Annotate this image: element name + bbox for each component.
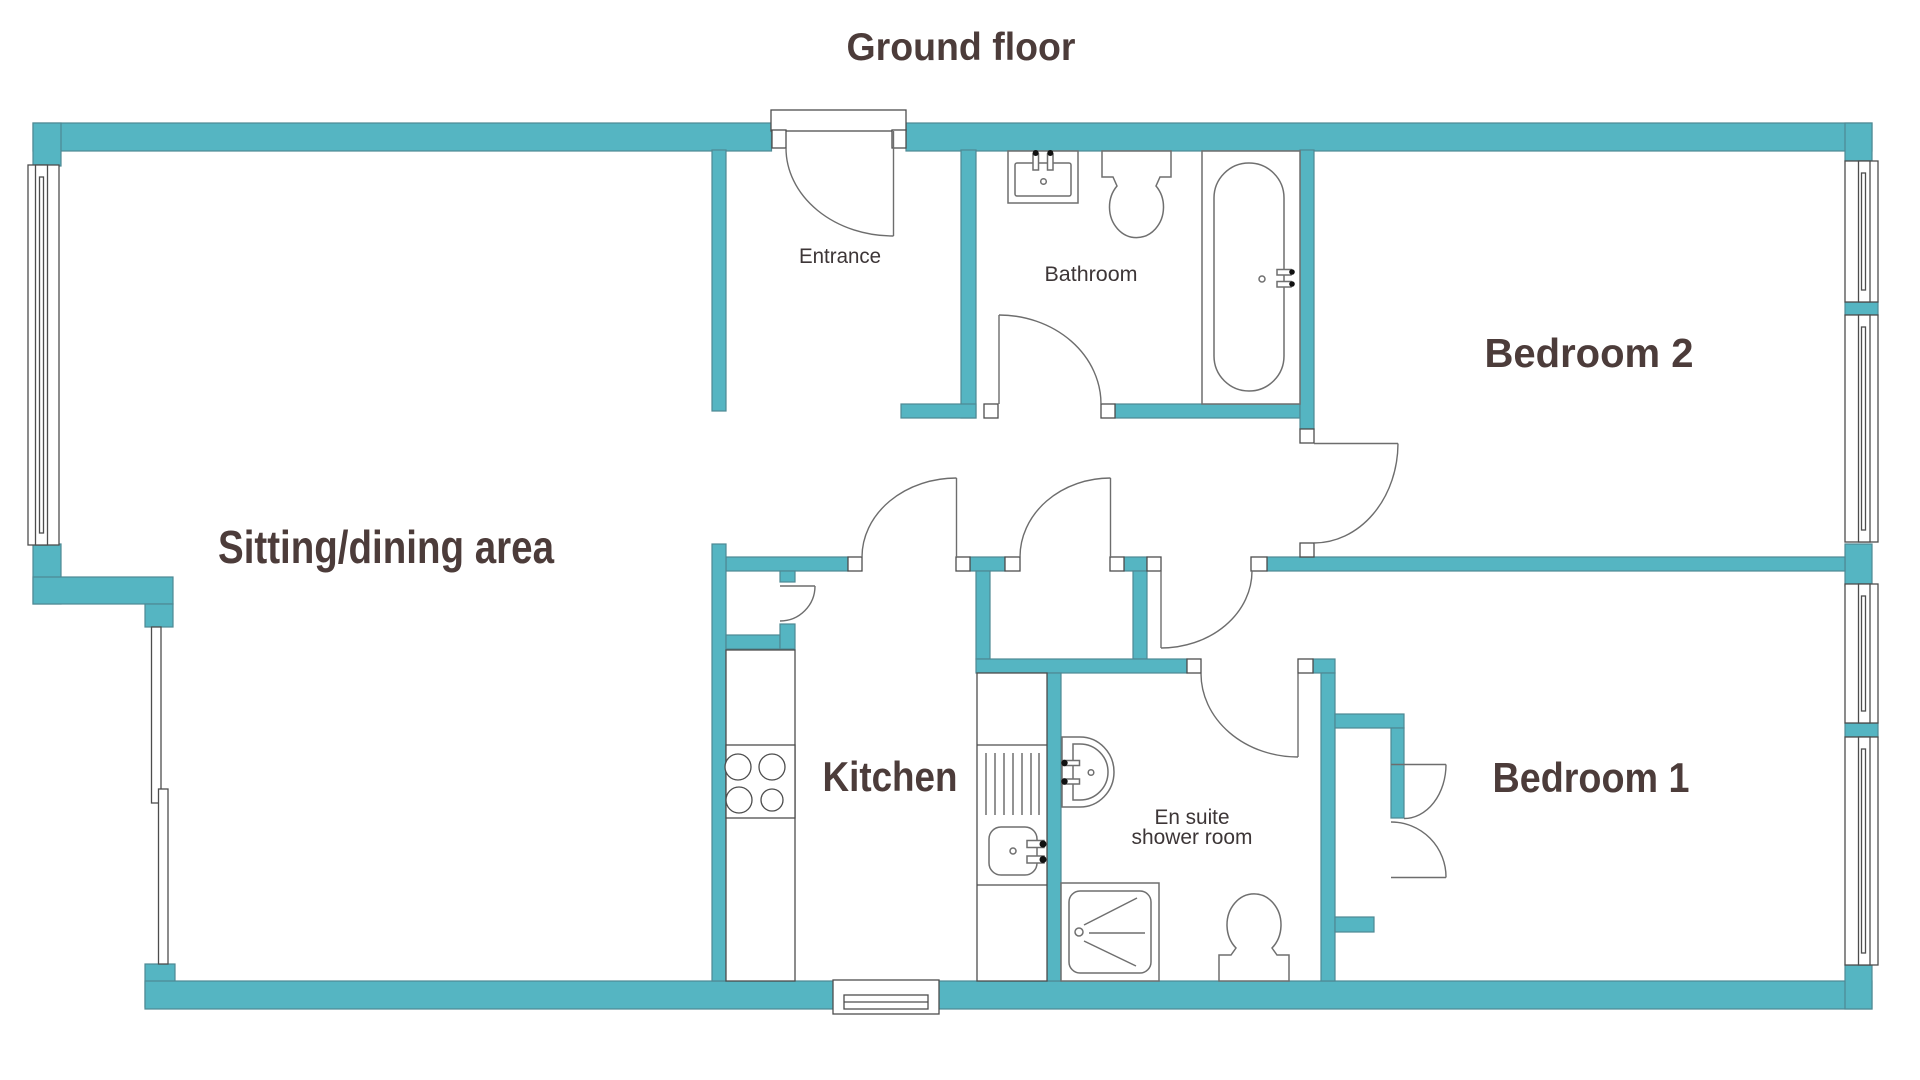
svg-text:Bedroom 1: Bedroom 1 bbox=[1493, 754, 1690, 801]
svg-text:Bathroom: Bathroom bbox=[1045, 263, 1138, 286]
svg-text:Ground floor: Ground floor bbox=[847, 26, 1076, 69]
svg-text:Entrance: Entrance bbox=[799, 245, 881, 268]
svg-text:Bedroom 2: Bedroom 2 bbox=[1485, 330, 1694, 376]
svg-text:Sitting/dining area: Sitting/dining area bbox=[218, 521, 554, 573]
svg-text:Kitchen: Kitchen bbox=[823, 753, 958, 800]
svg-text:shower room: shower room bbox=[1132, 826, 1253, 849]
